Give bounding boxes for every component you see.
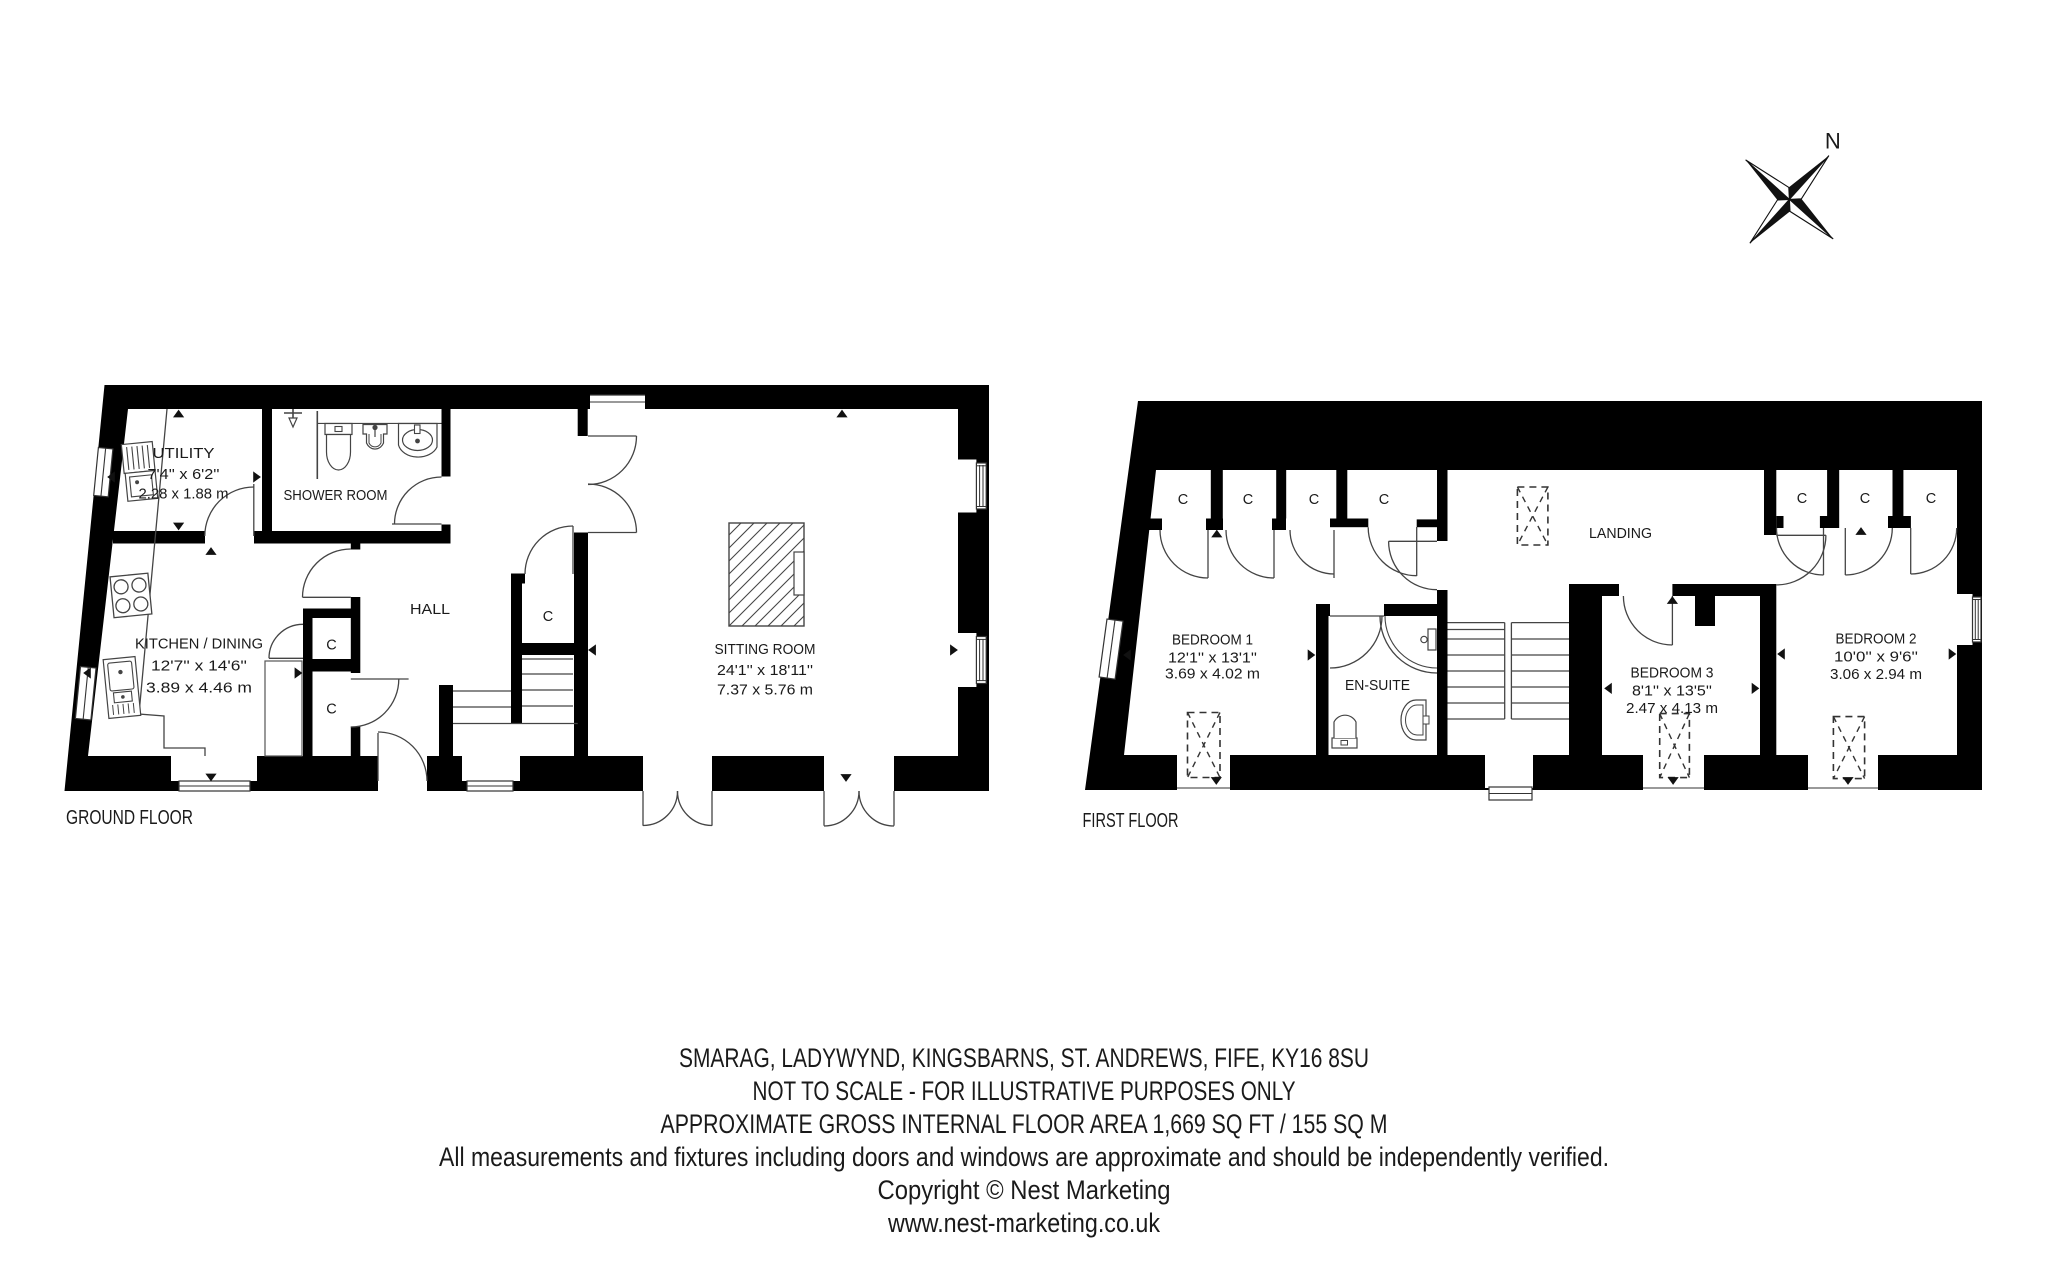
svg-text:C: C xyxy=(326,702,336,718)
svg-text:C: C xyxy=(543,609,553,625)
svg-text:HALL: HALL xyxy=(410,602,450,618)
svg-text:KITCHEN / DINING: KITCHEN / DINING xyxy=(135,637,263,653)
svg-text:N: N xyxy=(1825,129,1841,154)
svg-text:2.28 x 1.88 m: 2.28 x 1.88 m xyxy=(139,487,229,503)
svg-text:www.nest-marketing.co.uk: www.nest-marketing.co.uk xyxy=(887,1208,1160,1238)
svg-text:10'0'' x 9'6'': 10'0'' x 9'6'' xyxy=(1834,650,1918,666)
svg-text:3.69 x 4.02 m: 3.69 x 4.02 m xyxy=(1165,667,1260,683)
svg-text:EN-SUITE: EN-SUITE xyxy=(1345,678,1410,694)
svg-text:12'7'' x 14'6'': 12'7'' x 14'6'' xyxy=(151,659,247,675)
svg-text:BEDROOM 1: BEDROOM 1 xyxy=(1172,633,1253,649)
svg-text:3.06 x 2.94 m: 3.06 x 2.94 m xyxy=(1830,667,1922,683)
svg-text:24'1'' x 18'11'': 24'1'' x 18'11'' xyxy=(717,663,813,679)
svg-text:BEDROOM 3: BEDROOM 3 xyxy=(1631,666,1714,682)
svg-text:C: C xyxy=(1178,492,1188,508)
svg-text:12'1'' x 13'1'': 12'1'' x 13'1'' xyxy=(1168,651,1257,667)
svg-text:3.89 x 4.46 m: 3.89 x 4.46 m xyxy=(146,681,252,697)
svg-text:C: C xyxy=(1243,492,1253,508)
svg-text:SMARAG, LADYWYND, KINGSBARNS,: SMARAG, LADYWYND, KINGSBARNS, ST. ANDREW… xyxy=(679,1043,1369,1073)
svg-text:All measurements and fixtures: All measurements and fixtures including … xyxy=(439,1142,1609,1172)
svg-text:LANDING: LANDING xyxy=(1589,526,1652,542)
svg-text:NOT TO SCALE - FOR ILLUSTRATIV: NOT TO SCALE - FOR ILLUSTRATIVE PURPOSES… xyxy=(753,1076,1296,1106)
svg-text:UTILITY: UTILITY xyxy=(153,446,215,462)
svg-text:C: C xyxy=(326,638,336,654)
svg-text:C: C xyxy=(1797,491,1807,507)
svg-text:8'1'' x 13'5'': 8'1'' x 13'5'' xyxy=(1632,684,1712,700)
svg-text:C: C xyxy=(1309,492,1319,508)
svg-text:7.37 x 5.76 m: 7.37 x 5.76 m xyxy=(717,683,813,699)
svg-text:C: C xyxy=(1379,492,1389,508)
svg-text:BEDROOM 2: BEDROOM 2 xyxy=(1836,632,1917,648)
svg-text:APPROXIMATE GROSS INTERNAL FLO: APPROXIMATE GROSS INTERNAL FLOOR AREA 1,… xyxy=(661,1109,1388,1139)
svg-text:FIRST FLOOR: FIRST FLOOR xyxy=(1083,809,1179,832)
svg-text:2.47 x 4.13 m: 2.47 x 4.13 m xyxy=(1626,701,1718,717)
svg-text:C: C xyxy=(1860,491,1870,507)
svg-text:7'4'' x 6'2'': 7'4'' x 6'2'' xyxy=(148,467,220,483)
svg-text:GROUND FLOOR: GROUND FLOOR xyxy=(66,806,193,829)
svg-text:SITTING ROOM: SITTING ROOM xyxy=(715,642,816,658)
svg-text:Copyright © Nest Marketing: Copyright © Nest Marketing xyxy=(878,1175,1171,1205)
svg-text:C: C xyxy=(1926,491,1936,507)
svg-text:SHOWER ROOM: SHOWER ROOM xyxy=(284,488,388,504)
